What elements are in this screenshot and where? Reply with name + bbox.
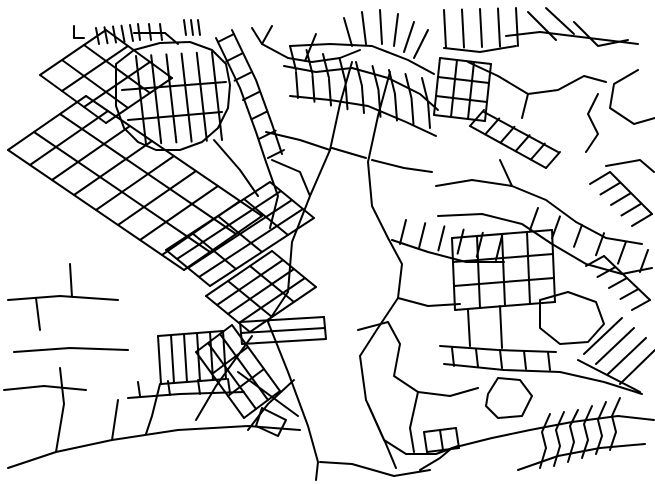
street-map-window xyxy=(0,0,655,484)
street-map-canvas[interactable] xyxy=(0,0,655,484)
